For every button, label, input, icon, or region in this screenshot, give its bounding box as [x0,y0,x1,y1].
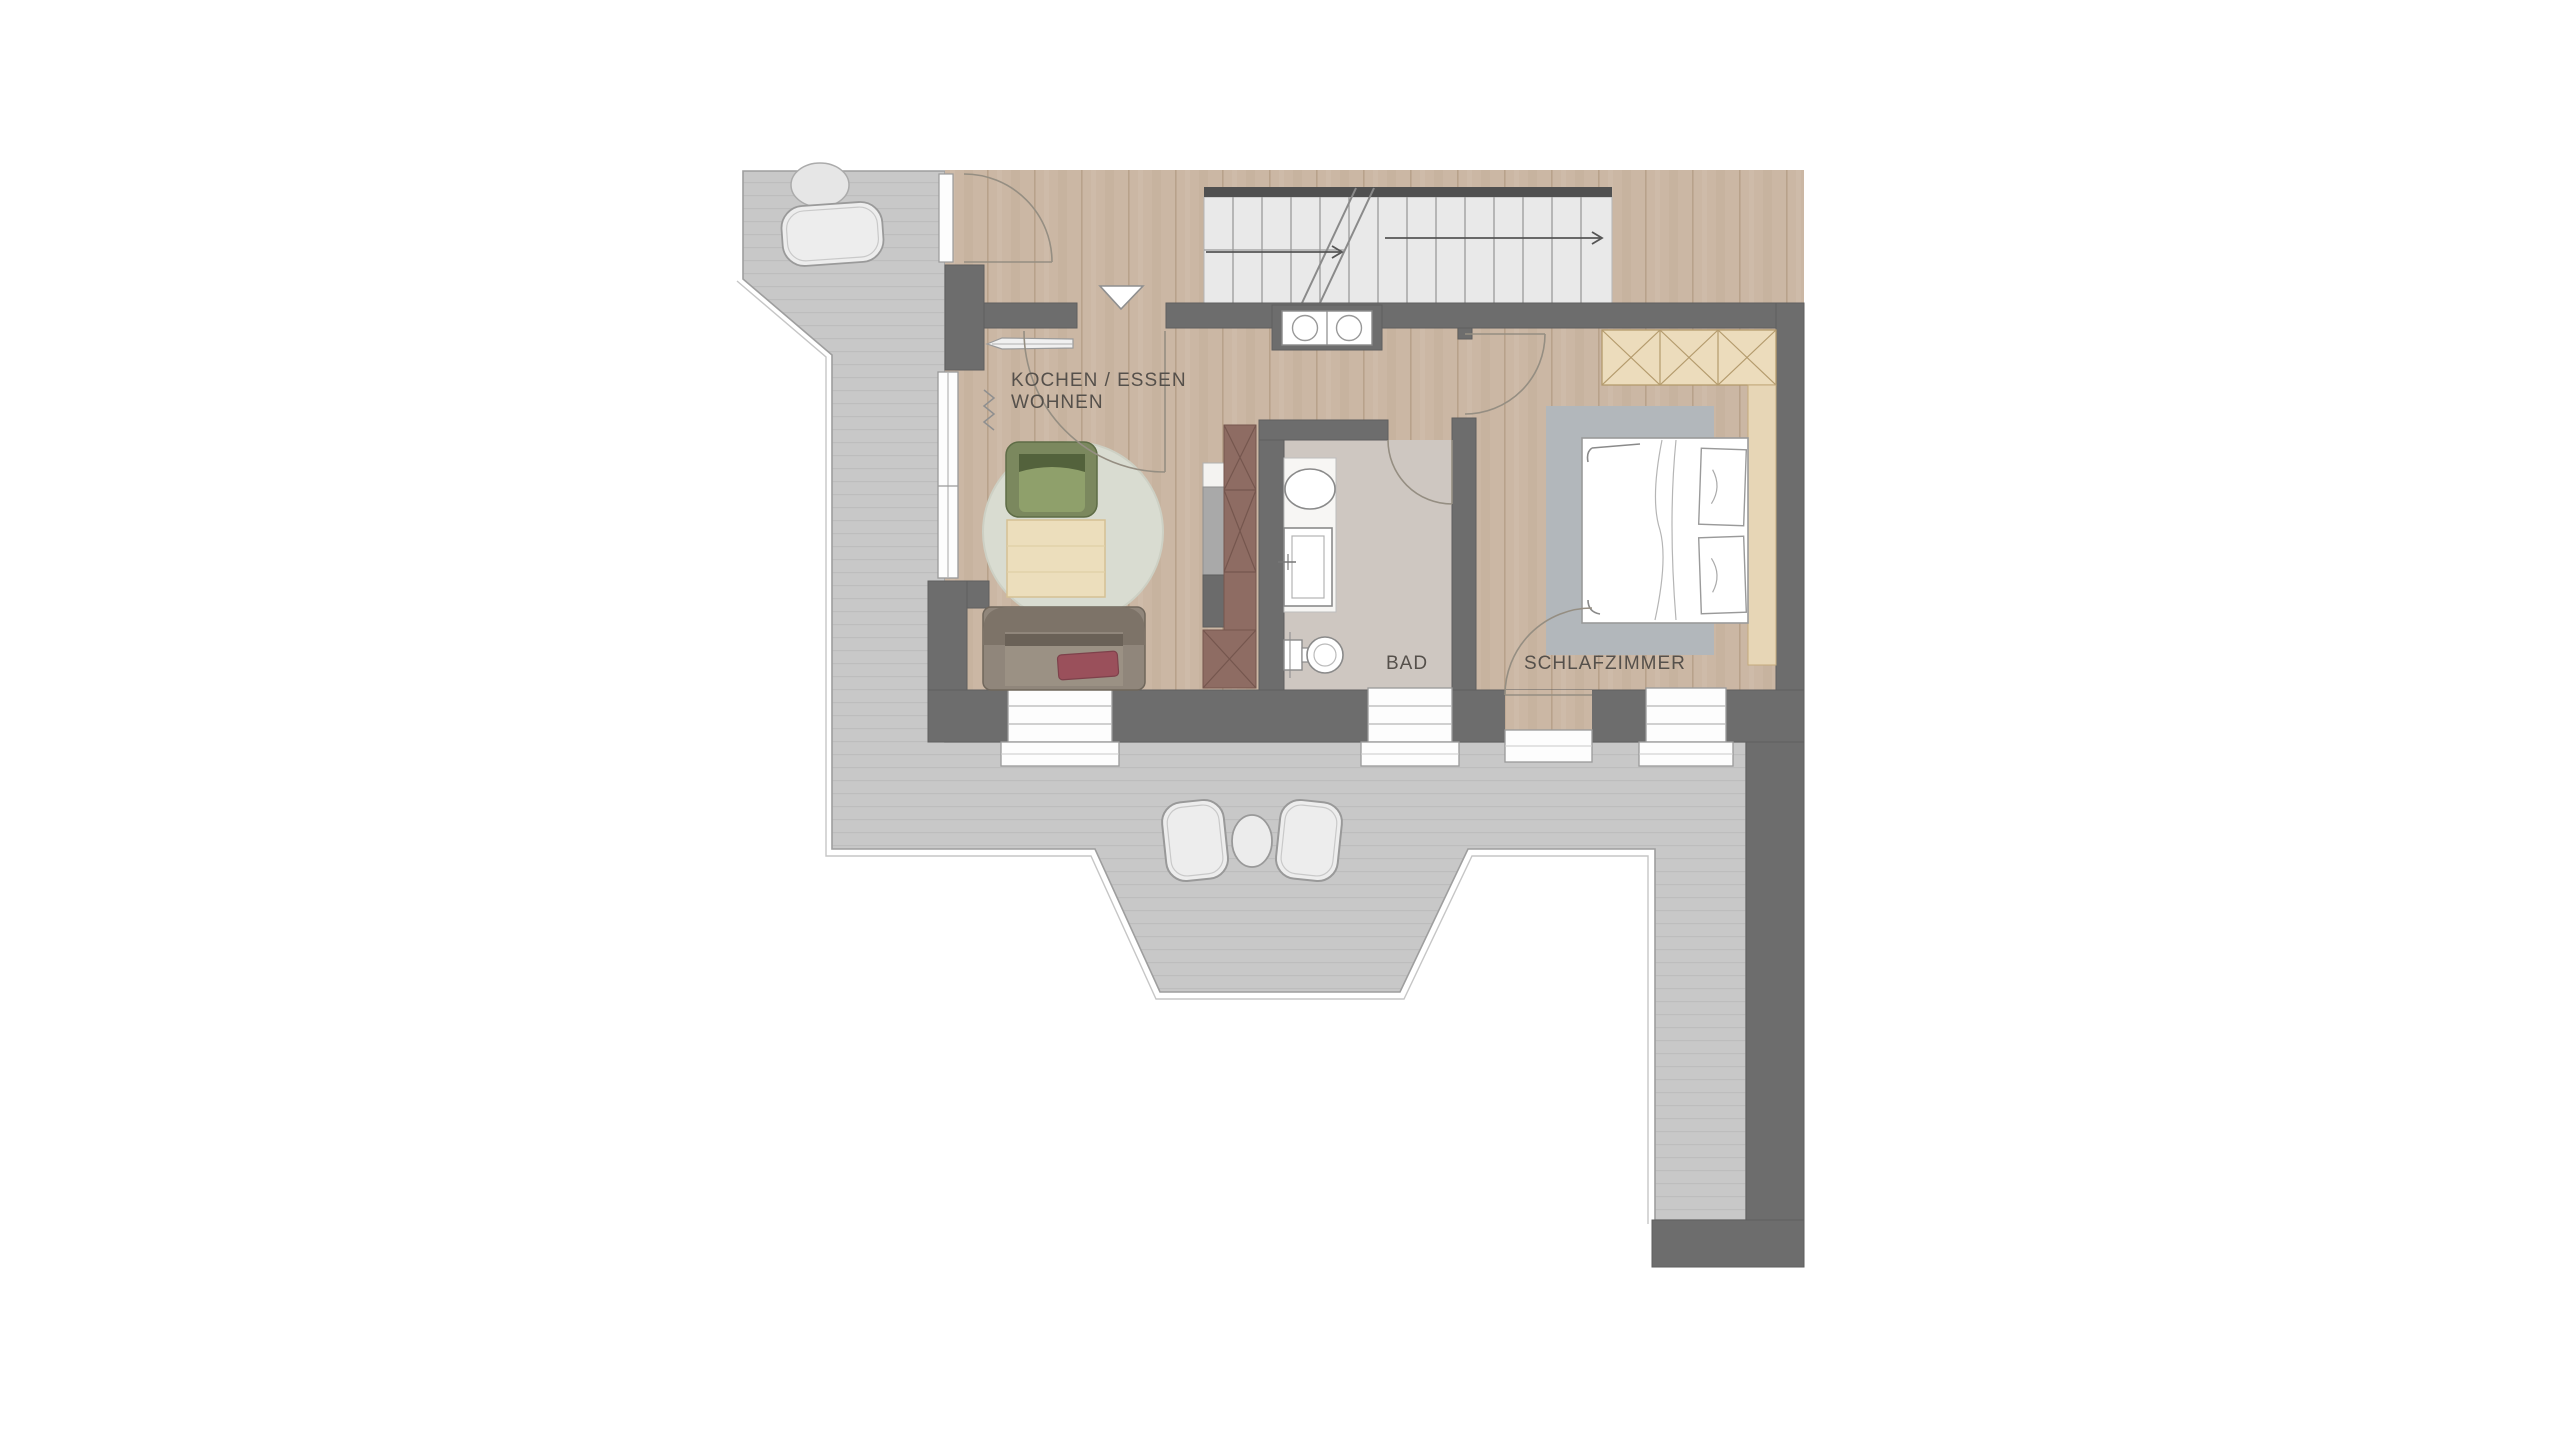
terrace-door-bedroom [1505,690,1592,762]
bathroom-fixtures [1278,458,1343,678]
sofa-pillow [1057,651,1119,680]
label-kitchen-living-line2: WOHNEN [1011,392,1104,413]
window-living [1001,688,1119,766]
bed [1582,438,1748,623]
coffee-table [1007,520,1105,597]
window-bedroom [1639,688,1733,766]
stone-large [780,201,885,268]
bed-pillow-top [1699,448,1747,526]
coat-rack [987,338,1073,349]
window-bathroom [1361,688,1459,766]
wall-entry-arm [984,303,1077,328]
terrace-table [1232,815,1272,867]
shower [1278,528,1332,606]
wall-top-band [1166,303,1804,328]
stair-handrail [1204,187,1612,197]
label-bedroom: SCHLAFZIMMER [1524,653,1686,674]
cooktop [1282,311,1372,345]
stairs [1204,187,1612,303]
label-kitchen-living-line1: KOCHEN / ESSEN [1011,370,1187,391]
washbasin [1285,469,1335,509]
label-bathroom: BAD [1386,653,1428,674]
wall-bath-right [1452,418,1476,690]
bed-pillow-bottom [1699,536,1747,614]
floor-plan-page: KOCHEN / ESSEN WOHNEN BAD SCHLAFZIMMER [0,0,2560,1440]
armchair [1006,442,1097,517]
terrace-chair-left [1160,798,1230,883]
wall-left-lower-step [967,581,989,608]
wall-right-building [1776,303,1804,742]
terrace-chair-right [1274,798,1344,883]
wall-left-upper [945,265,984,370]
terrace-door-hall [939,174,953,262]
stone-small [791,163,849,207]
sofa [983,607,1145,690]
window-living-west [938,372,958,578]
floor-plan-drawing: KOCHEN / ESSEN WOHNEN BAD SCHLAFZIMMER [0,0,2560,1440]
wall-terrace-end-cap [1652,1220,1804,1267]
wardrobe [1602,330,1776,385]
kitchen-tall-cabinet [1203,425,1256,688]
wall-terrace-right [1746,742,1804,1220]
wall-bath-top [1259,420,1388,440]
bed-headboard-panel [1748,385,1776,665]
wall-bath-left [1259,420,1284,690]
